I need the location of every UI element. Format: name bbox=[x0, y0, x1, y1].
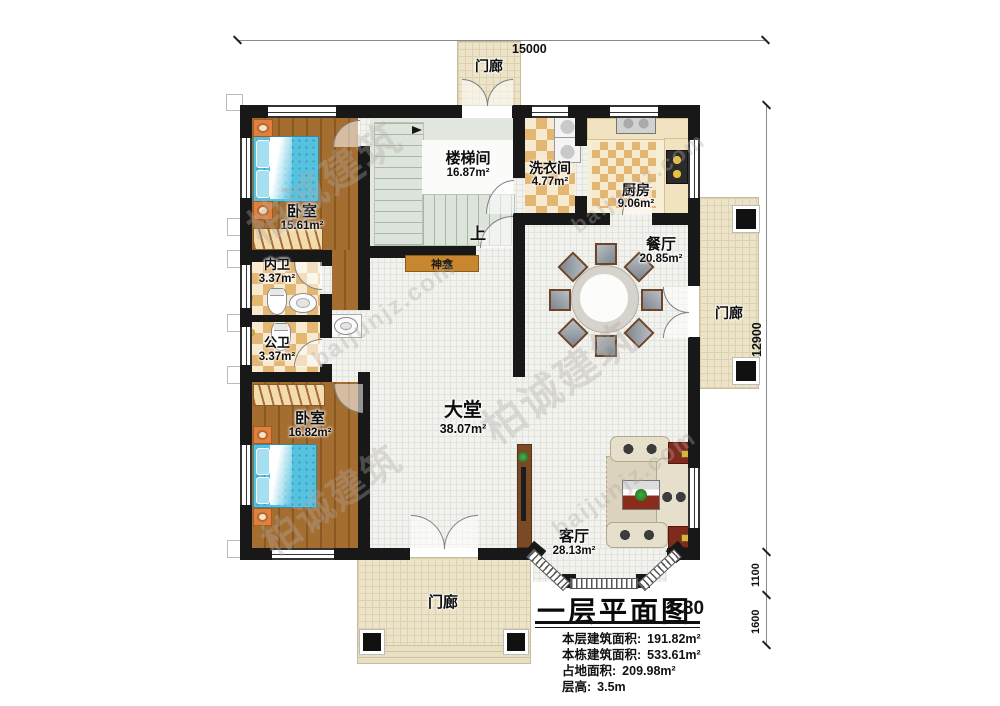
window bbox=[688, 140, 700, 198]
room-label-porch-top: 门廊 bbox=[460, 58, 518, 74]
room-label-bedroom2: 卧室16.82m² bbox=[270, 410, 350, 440]
dining-chair bbox=[641, 289, 663, 311]
nightstand bbox=[253, 508, 272, 526]
plant bbox=[518, 452, 528, 462]
window bbox=[272, 548, 334, 560]
wall-segment bbox=[358, 372, 370, 382]
bed-sheet bbox=[270, 137, 292, 199]
room-label-stairwell: 楼梯间16.87m² bbox=[420, 150, 516, 180]
pillow bbox=[256, 140, 270, 168]
stair-direction-arrow bbox=[412, 126, 422, 134]
dimension-porch: 1600 bbox=[750, 600, 762, 644]
wall-segment bbox=[652, 213, 700, 225]
plan-scale: 1:80 bbox=[666, 598, 704, 620]
bathroom-sink bbox=[289, 293, 317, 313]
window bbox=[240, 138, 252, 198]
stat-storey-height: 层高:3.5m bbox=[562, 676, 626, 695]
porch-column bbox=[733, 206, 759, 232]
pillow bbox=[256, 170, 270, 198]
floor-plan-canvas: 神龛 上 门廊 卧室15.61m² 楼梯间16.87m² 洗衣间4.77m² 厨… bbox=[0, 0, 1000, 706]
wall-segment bbox=[358, 146, 370, 310]
corridor-floor bbox=[332, 250, 358, 310]
window bbox=[268, 105, 336, 118]
room-label-living: 客厅28.13m² bbox=[536, 528, 612, 558]
title-underline bbox=[535, 621, 700, 628]
porch-column bbox=[360, 630, 384, 654]
room-label-bath-public: 公卫3.37m² bbox=[248, 336, 306, 364]
room-label-dining: 餐厅20.85m² bbox=[628, 236, 694, 266]
toilet bbox=[267, 288, 287, 315]
dining-chair bbox=[595, 335, 617, 357]
porch-column bbox=[504, 630, 528, 654]
dimension-height: 12900 bbox=[750, 305, 764, 375]
bay-window-glass bbox=[570, 578, 638, 589]
room-label-hall: 大堂38.07m² bbox=[418, 400, 508, 436]
room-label-porch-bottom: 门廊 bbox=[412, 594, 474, 611]
stair-flight bbox=[374, 122, 424, 246]
dimension-width: 15000 bbox=[512, 42, 547, 56]
sofa bbox=[606, 522, 668, 548]
wall-segment bbox=[513, 213, 610, 225]
nightstand bbox=[253, 119, 273, 137]
room-label-bath-ensuite: 内卫3.37m² bbox=[248, 258, 306, 286]
window bbox=[240, 445, 252, 505]
window bbox=[610, 105, 658, 118]
shrine-shelf: 神龛 bbox=[405, 255, 479, 272]
wall-segment bbox=[240, 315, 332, 322]
dimension-bay: 1100 bbox=[750, 556, 762, 594]
coffee-table bbox=[622, 480, 660, 510]
pillow bbox=[256, 477, 270, 504]
wall-segment bbox=[513, 213, 525, 377]
wall-segment bbox=[575, 118, 587, 146]
room-label-laundry: 洗衣间4.77m² bbox=[512, 160, 588, 189]
pillow bbox=[256, 448, 270, 475]
dimension-line-right bbox=[766, 105, 767, 645]
room-label-bedroom1: 卧室15.61m² bbox=[262, 203, 342, 233]
dining-chair bbox=[595, 243, 617, 265]
room-label-kitchen: 厨房9.06m² bbox=[600, 182, 672, 211]
window bbox=[532, 105, 568, 118]
wardrobe bbox=[253, 384, 325, 406]
dining-table-top bbox=[580, 274, 628, 322]
shrine-label: 神龛 bbox=[431, 256, 453, 272]
dimension-line-top bbox=[237, 40, 766, 41]
hall-sink bbox=[334, 317, 358, 335]
stairs-up-label: 上 bbox=[470, 220, 486, 244]
tv bbox=[521, 467, 526, 521]
dining-chair bbox=[549, 289, 571, 311]
window bbox=[688, 468, 700, 528]
wall-segment bbox=[240, 372, 332, 382]
stove bbox=[666, 150, 688, 184]
bed-sheet bbox=[270, 445, 292, 505]
